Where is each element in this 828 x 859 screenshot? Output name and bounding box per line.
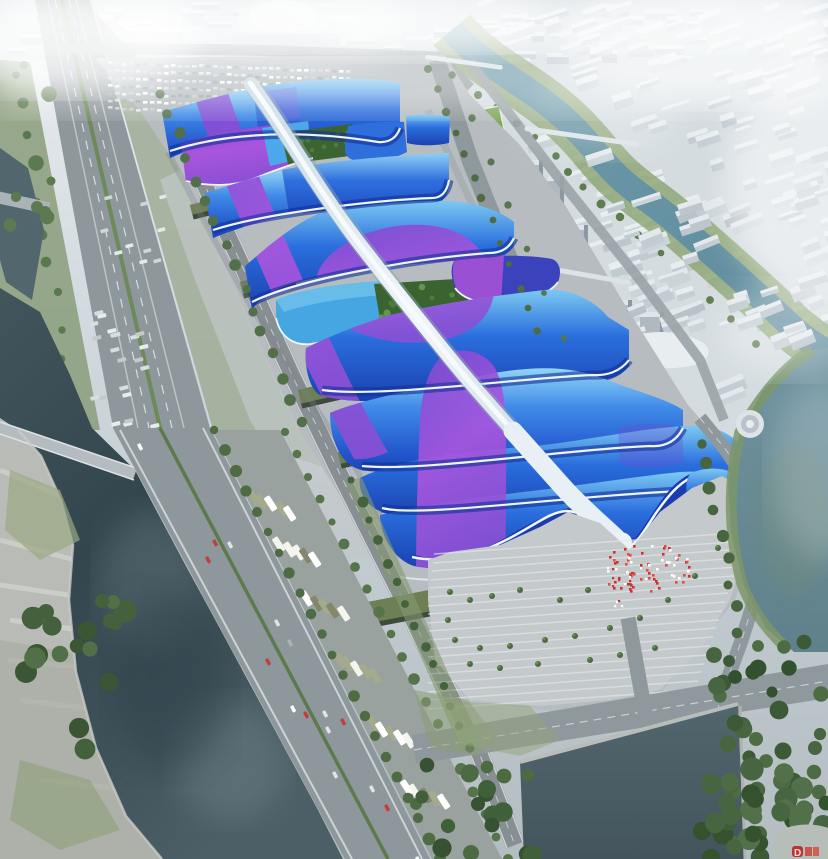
svg-text:D: D	[794, 848, 801, 859]
